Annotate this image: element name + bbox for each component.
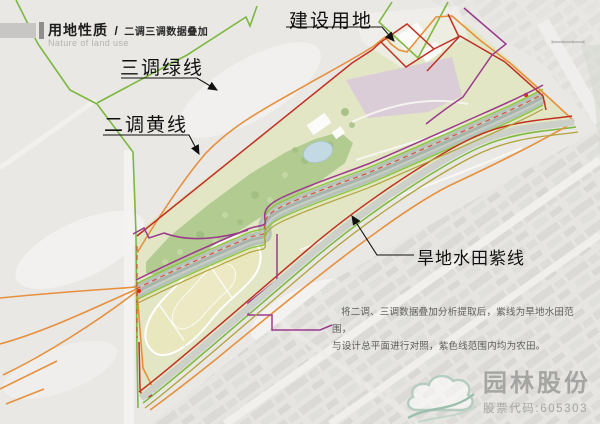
company-logo-text: 园林股份 股票代码:605303 — [483, 371, 591, 416]
header-accent-bar — [39, 22, 44, 39]
company-logo-cloud-icon — [404, 372, 482, 424]
page-subtitle: 二调三调数据叠加 — [124, 27, 208, 38]
page-title-row: 用地性质 / 二调三调数据叠加 — [48, 20, 208, 40]
label-construction-land: 建设用地 — [289, 6, 373, 33]
page-title-english: Nature of land use — [48, 38, 129, 48]
page-title: 用地性质 — [48, 22, 108, 38]
analysis-note-line1: 将二调、三调数据叠加分析提取后，紫线为旱地水田范围， — [332, 304, 582, 338]
label-survey3-green-line: 三调绿线 — [120, 53, 204, 80]
stock-code: 股票代码:605303 — [483, 400, 591, 416]
company-name: 园林股份 — [483, 371, 591, 397]
header-accent-block — [0, 23, 36, 38]
analysis-note-line2: 与设计总平面进行对照，紫色线范围内均为农田。 — [332, 338, 582, 355]
title-separator: / — [114, 24, 117, 38]
label-paddy-purple-line: 旱地水田紫线 — [417, 244, 525, 269]
land-use-overlay-map — [0, 0, 600, 424]
label-survey2-yellow-line: 二调黄线 — [104, 110, 188, 137]
planning-map-slide: 用地性质 / 二调三调数据叠加 Nature of land use 三调绿线 … — [0, 0, 600, 424]
analysis-note: 将二调、三调数据叠加分析提取后，紫线为旱地水田范围， 与设计总平面进行对照，紫色… — [332, 304, 582, 355]
